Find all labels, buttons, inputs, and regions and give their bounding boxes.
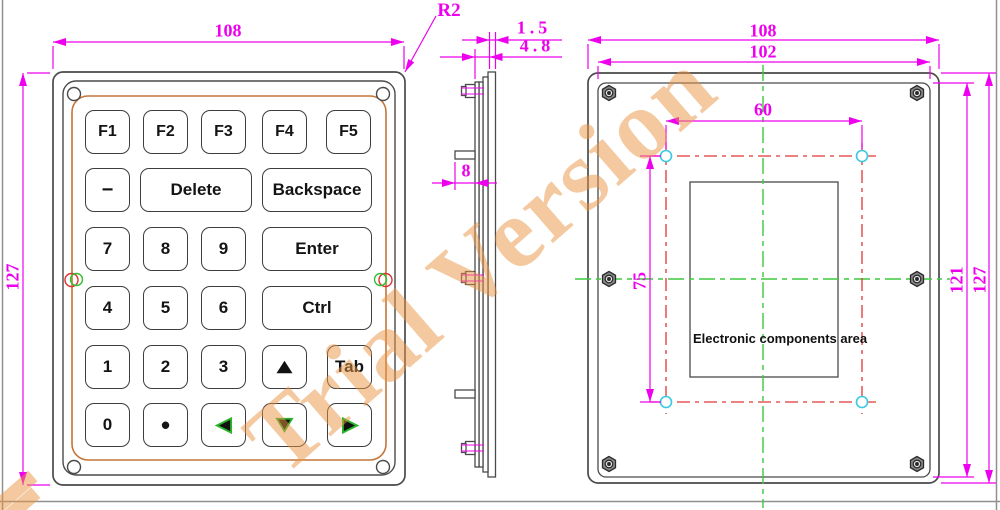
key-arrow-left — [201, 403, 246, 447]
key-label: 6 — [219, 298, 228, 318]
key-label: 1 — [103, 357, 112, 377]
key-label: Backspace — [273, 180, 362, 200]
key-minus: − — [85, 168, 130, 212]
side-back-panel — [488, 72, 496, 477]
key-f1: F1 — [85, 110, 130, 154]
hole-span-width-dim: 60 — [754, 100, 772, 121]
key-backspace: Backspace — [262, 168, 372, 212]
key-arrow-down — [262, 403, 307, 447]
front-hole-bottom-right — [377, 461, 390, 474]
key-8: 8 — [143, 227, 188, 271]
key-f4: F4 — [262, 110, 307, 154]
key-dot: • — [143, 403, 188, 447]
arrow-left-icon — [215, 417, 233, 434]
key-5: 5 — [143, 286, 188, 330]
key-label: F3 — [214, 123, 233, 141]
side-screw-middle — [462, 272, 476, 285]
back-inner-width-dim: 102 — [750, 42, 777, 63]
screw-icon — [911, 272, 924, 287]
side-screw-top — [462, 85, 476, 98]
screw-icon — [603, 86, 616, 101]
side-screw-bottom — [462, 442, 476, 455]
key-tab: Tab — [327, 345, 372, 389]
key-label: 0 — [103, 415, 112, 435]
key-label: F5 — [339, 123, 358, 141]
screw-icon — [911, 86, 924, 101]
front-hole-top-left — [68, 88, 81, 101]
screw-icon — [911, 457, 924, 472]
key-arrow-right — [327, 403, 372, 447]
back-width-dim: 108 — [750, 21, 777, 42]
key-3: 3 — [201, 345, 246, 389]
key-label: 9 — [219, 239, 228, 259]
hole-span-height-dim: 75 — [630, 272, 651, 290]
key-9: 9 — [201, 227, 246, 271]
key-label: Enter — [295, 239, 338, 259]
key-ctrl: Ctrl — [262, 286, 372, 330]
key-f3: F3 — [201, 110, 246, 154]
key-label: 5 — [161, 298, 170, 318]
corner-radius-label: R2 — [437, 0, 460, 22]
key-label: 7 — [103, 239, 112, 259]
key-label: 8 — [161, 239, 170, 259]
side-stud-bottom — [455, 390, 475, 398]
key-label: • — [161, 420, 170, 430]
key-label: 3 — [219, 357, 228, 377]
keypad-engineering-drawing: F1 F2 F3 F4 F5 − Delete Backspace 7 8 9 … — [0, 0, 1000, 510]
key-label: Ctrl — [302, 298, 331, 318]
key-2: 2 — [143, 345, 188, 389]
key-label: Tab — [335, 357, 364, 377]
key-0: 0 — [85, 403, 130, 447]
key-4: 4 — [85, 286, 130, 330]
arrow-right-icon — [341, 417, 359, 434]
front-height-dim: 127 — [3, 264, 24, 291]
arrow-up-icon — [275, 359, 294, 375]
key-label: 2 — [161, 357, 170, 377]
arrow-down-icon — [275, 417, 294, 433]
screw-icon — [603, 272, 616, 287]
front-hole-bottom-left — [68, 461, 81, 474]
key-label: − — [102, 179, 114, 202]
side-stud-top — [455, 151, 475, 159]
key-f2: F2 — [143, 110, 188, 154]
back-height-dim: 127 — [970, 267, 991, 294]
key-6: 6 — [201, 286, 246, 330]
key-f5: F5 — [326, 110, 371, 154]
key-1: 1 — [85, 345, 130, 389]
key-label: F4 — [275, 123, 294, 141]
back-inner-height-dim: 121 — [947, 267, 968, 294]
front-width-dim: 108 — [215, 21, 242, 42]
key-label: 4 — [103, 298, 112, 318]
side-stud-length-dim: 8 — [462, 161, 471, 182]
side-total-thickness-dim: 4.8 — [520, 36, 555, 57]
key-label: F1 — [98, 123, 117, 141]
key-enter: Enter — [262, 227, 372, 271]
front-hole-top-right — [377, 88, 390, 101]
key-label: F2 — [156, 123, 175, 141]
key-7: 7 — [85, 227, 130, 271]
electronic-components-area-label: Electronic components area — [693, 331, 867, 346]
key-arrow-up — [262, 345, 307, 389]
key-delete: Delete — [140, 168, 252, 212]
screw-icon — [603, 457, 616, 472]
key-label: Delete — [170, 180, 221, 200]
